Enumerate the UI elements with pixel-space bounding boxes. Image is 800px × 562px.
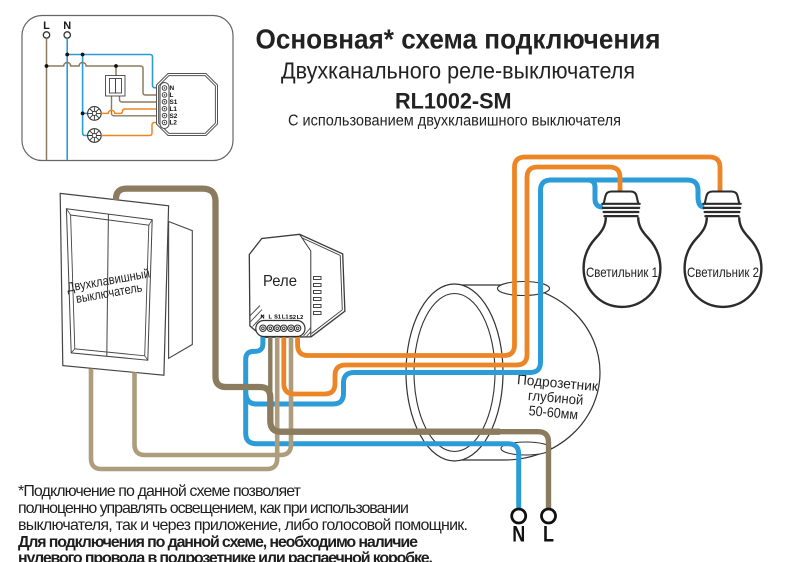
svg-text:L1: L1: [282, 315, 289, 321]
svg-text:Для подключения по данной схем: Для подключения по данной схеме, необход…: [18, 534, 418, 551]
svg-text:L2: L2: [170, 120, 178, 127]
svg-text:S2: S2: [289, 315, 296, 321]
svg-text:Реле: Реле: [263, 273, 297, 290]
svg-text:полноценно управлять освещение: полноценно управлять освещением, как при…: [18, 500, 409, 517]
svg-text:Светильник 2: Светильник 2: [687, 264, 759, 280]
svg-text:нулевого провода в подрозетник: нулевого провода в подрозетнике или расп…: [18, 550, 433, 562]
svg-text:N: N: [512, 522, 525, 547]
svg-text:выключателя, так и через прило: выключателя, так и через приложение, либ…: [18, 517, 468, 534]
svg-text:Основная* схема подключения: Основная* схема подключения: [256, 24, 661, 55]
svg-text:N: N: [63, 20, 71, 32]
svg-text:Светильник 1: Светильник 1: [586, 264, 658, 280]
svg-text:S1: S1: [274, 315, 281, 321]
svg-text:L2: L2: [297, 315, 304, 321]
svg-text:Двухканального реле-выключател: Двухканального реле-выключателя: [281, 58, 635, 84]
svg-text:L: L: [543, 522, 554, 547]
svg-text:С использованием двухклавишног: С использованием двухклавишного выключат…: [288, 113, 621, 130]
svg-text:L: L: [268, 314, 272, 320]
svg-text:N: N: [260, 314, 264, 320]
svg-text:*Подключение по данной схеме п: *Подключение по данной схеме позволяет: [18, 483, 302, 500]
svg-text:RL1002-SM: RL1002-SM: [395, 89, 512, 114]
svg-text:L: L: [43, 20, 50, 32]
